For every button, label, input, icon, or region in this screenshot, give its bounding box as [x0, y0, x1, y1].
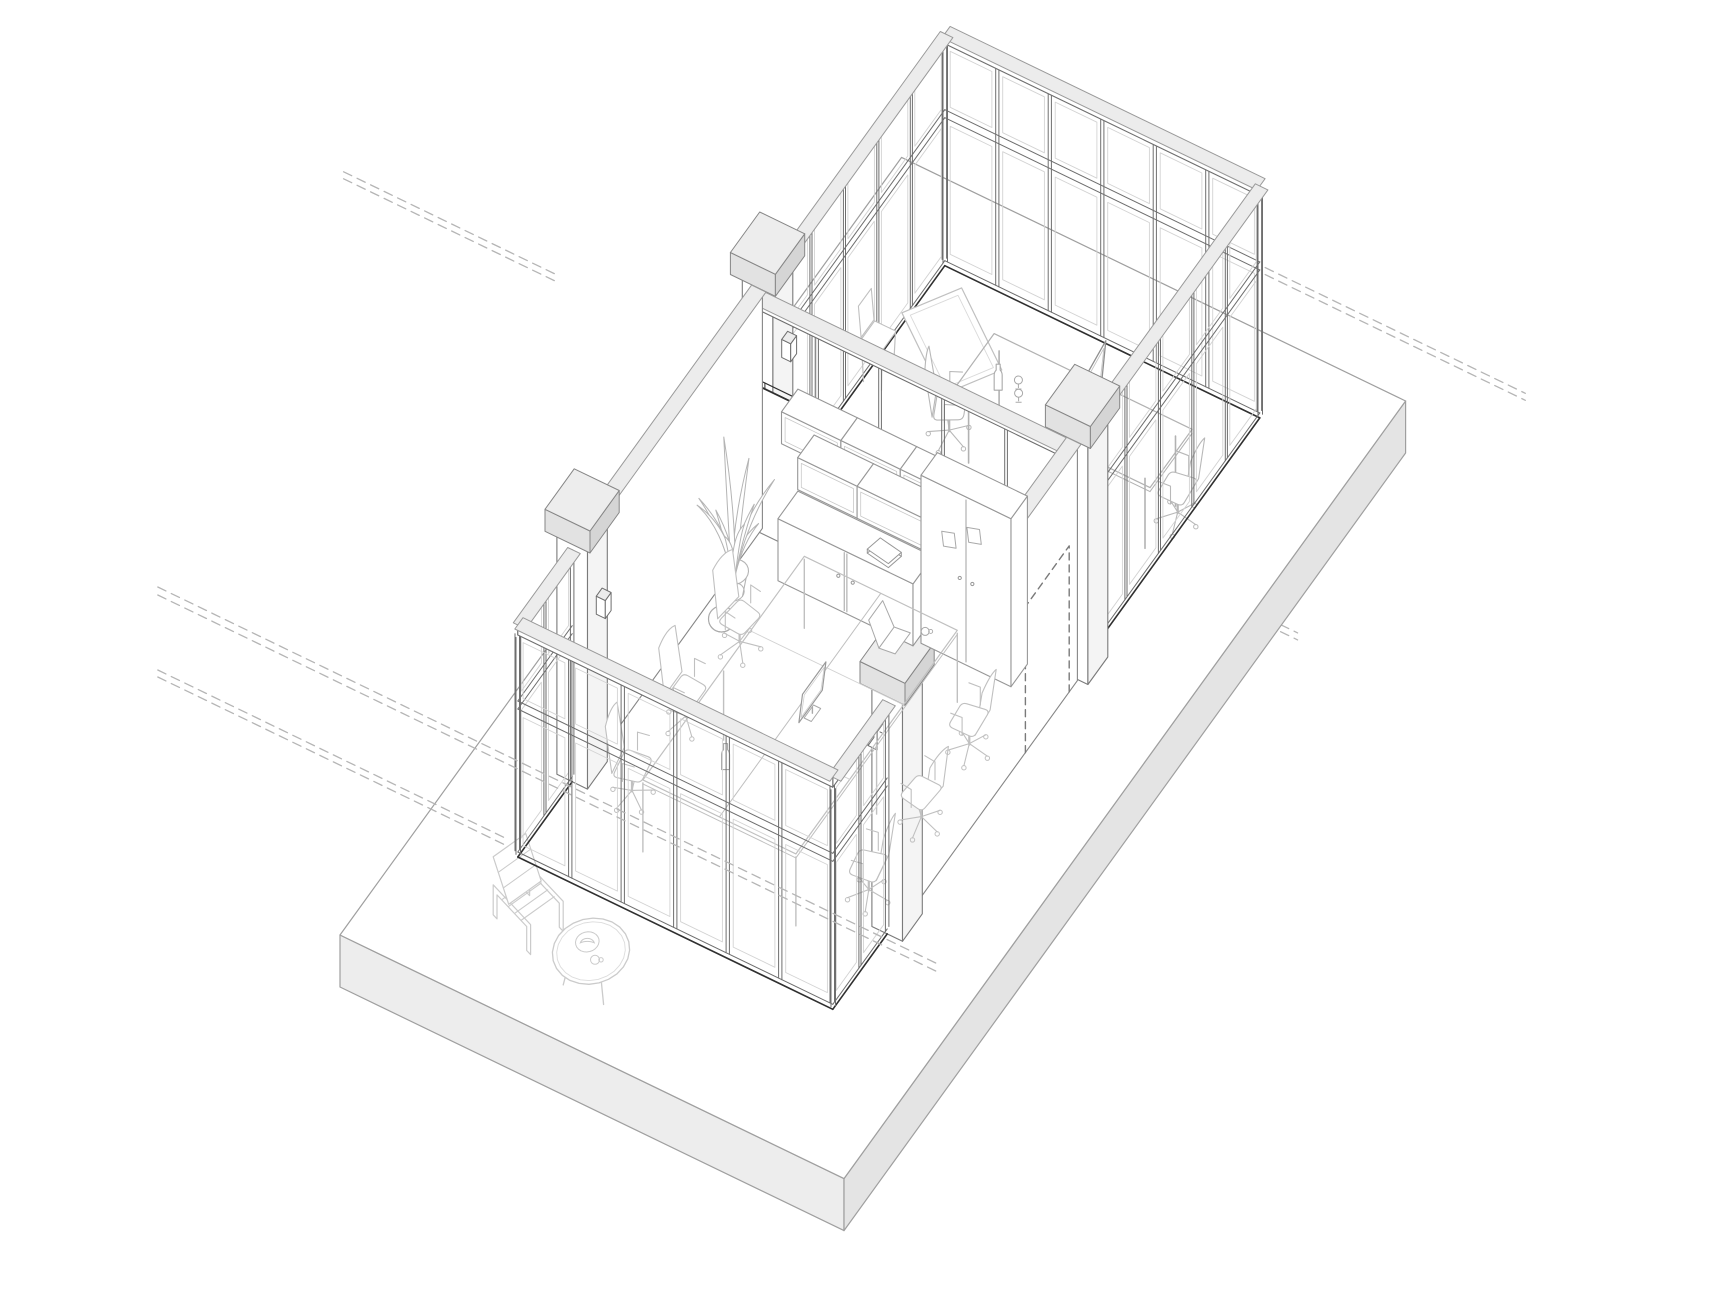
croissant-plate [576, 932, 600, 952]
spine-extension-nw [344, 172, 560, 283]
pinned-card [942, 531, 956, 548]
pinned-card [967, 527, 981, 544]
drawing-canvas: Axonometric line drawing of a glazed off… [0, 0, 1733, 1300]
axonometric-drawing [0, 0, 1733, 1300]
wall-lamp [782, 331, 797, 362]
wall-lamp [596, 588, 611, 619]
